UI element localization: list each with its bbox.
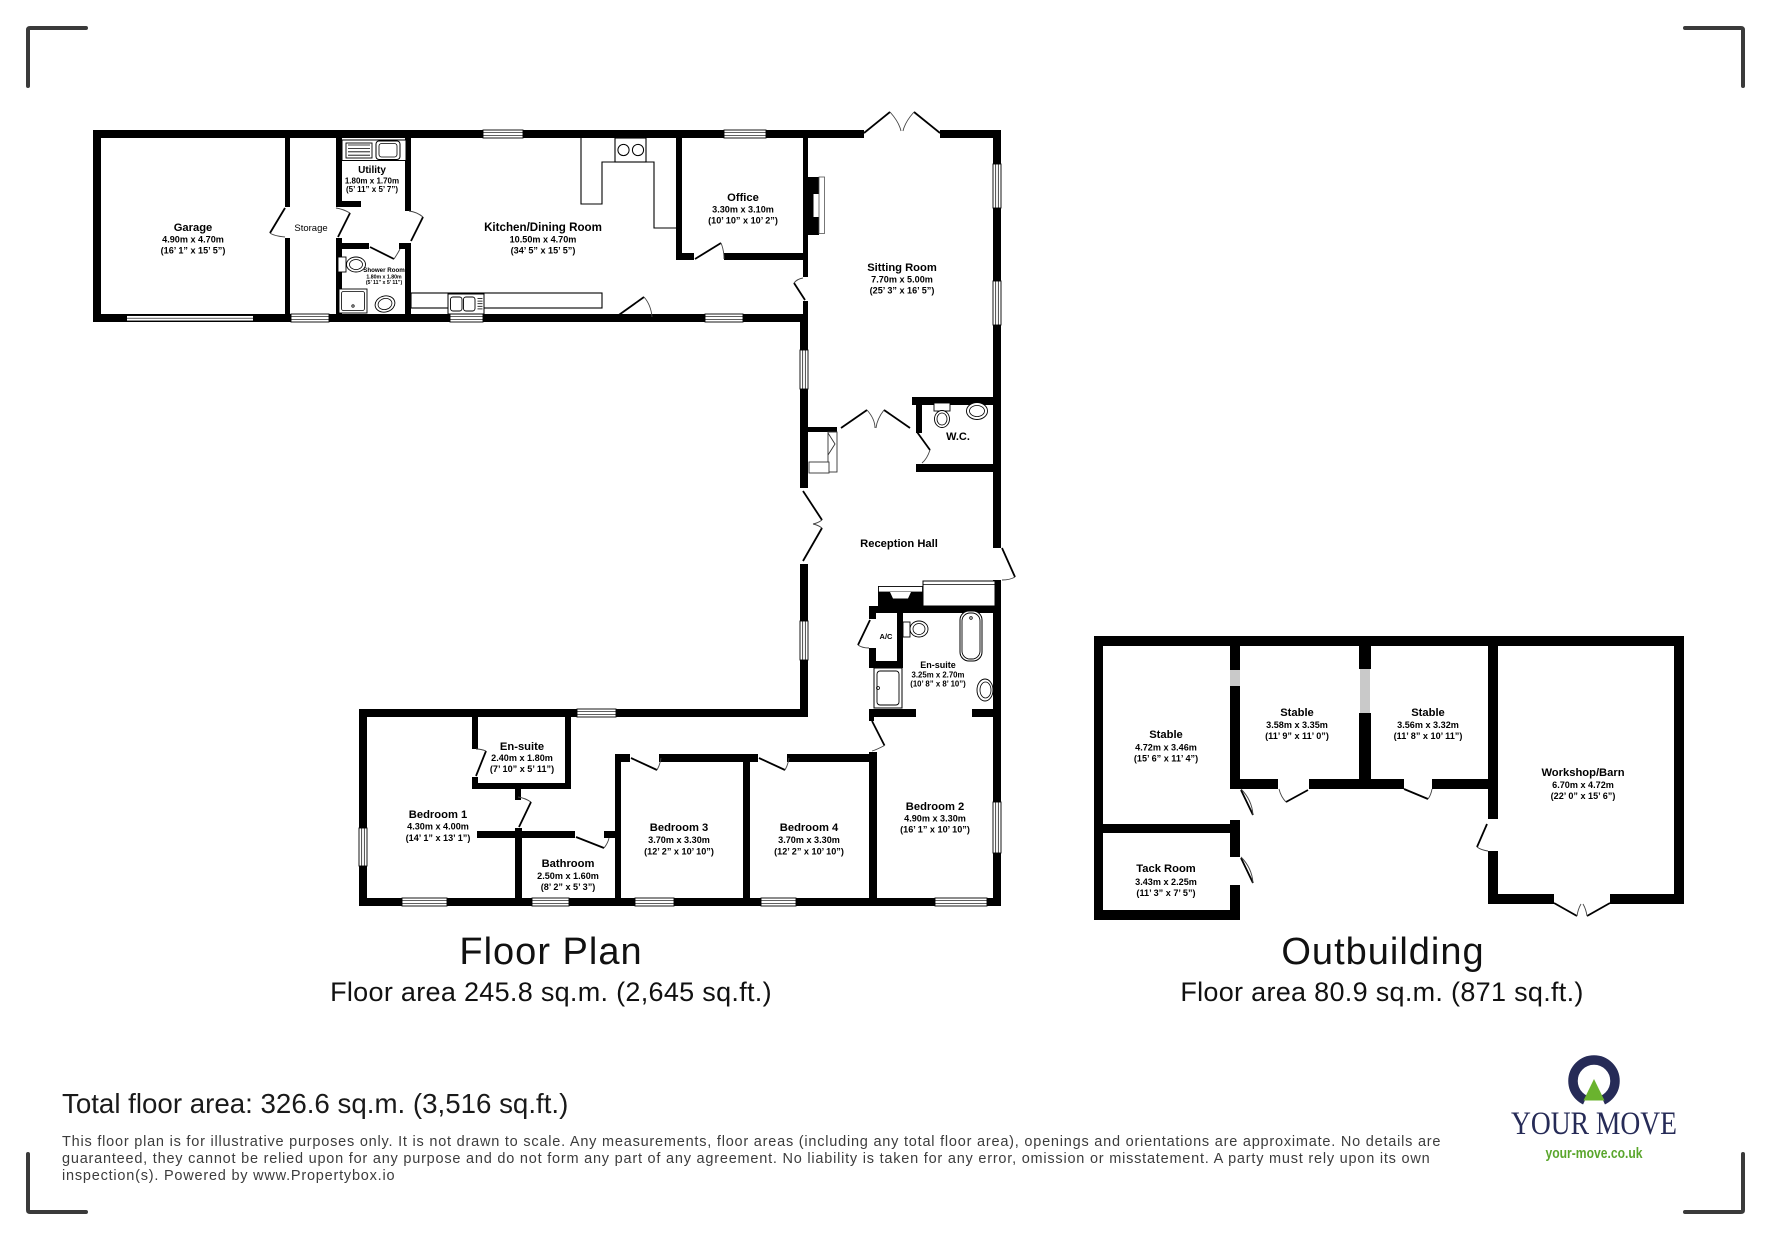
svg-text:7.70m x 5.00m: 7.70m x 5.00m xyxy=(871,275,933,285)
svg-text:3.25m x 2.70m: 3.25m x 2.70m xyxy=(912,671,965,680)
svg-text:(25’ 3” x 16’ 5”): (25’ 3” x 16’ 5”) xyxy=(870,286,935,296)
svg-text:Stable: Stable xyxy=(1280,707,1314,719)
svg-text:Office: Office xyxy=(727,192,759,204)
svg-text:A/C: A/C xyxy=(880,632,894,641)
svg-text:Floor area 245.8 sq.m. (2,645: Floor area 245.8 sq.m. (2,645 sq.ft.) xyxy=(330,977,772,1007)
svg-text:10.50m x 4.70m: 10.50m x 4.70m xyxy=(510,235,577,245)
svg-text:2.40m x 1.80m: 2.40m x 1.80m xyxy=(491,753,553,763)
svg-text:(10’ 10” x 10’ 2”): (10’ 10” x 10’ 2”) xyxy=(708,216,778,226)
svg-text:4.90m x 3.30m: 4.90m x 3.30m xyxy=(904,814,966,824)
svg-text:Outbuilding: Outbuilding xyxy=(1281,931,1484,973)
svg-text:(22’ 0” x 15’ 6”): (22’ 0” x 15’ 6”) xyxy=(1551,791,1616,801)
svg-text:Bedroom 2: Bedroom 2 xyxy=(906,801,964,813)
svg-text:Reception Hall: Reception Hall xyxy=(860,538,938,550)
svg-text:3.58m x 3.35m: 3.58m x 3.35m xyxy=(1266,720,1328,730)
svg-text:(12’ 2” x 10’ 10”): (12’ 2” x 10’ 10”) xyxy=(644,847,714,857)
svg-text:(10’ 8” x 8’ 10”): (10’ 8” x 8’ 10”) xyxy=(910,680,966,689)
svg-text:4.90m x 4.70m: 4.90m x 4.70m xyxy=(162,235,224,245)
svg-text:Workshop/Barn: Workshop/Barn xyxy=(1541,767,1624,779)
svg-text:your-move.co.uk: your-move.co.uk xyxy=(1546,1146,1644,1162)
svg-text:Shower Room: Shower Room xyxy=(363,267,405,274)
svg-text:(34’ 5” x 15’ 5”): (34’ 5” x 15’ 5”) xyxy=(511,246,576,256)
svg-text:4.30m x 4.00m: 4.30m x 4.00m xyxy=(407,822,469,832)
svg-text:(16’ 1” x 15’ 5”): (16’ 1” x 15’ 5”) xyxy=(161,246,226,256)
svg-text:2.50m x 1.60m: 2.50m x 1.60m xyxy=(537,871,599,881)
svg-text:Bedroom 1: Bedroom 1 xyxy=(409,809,467,821)
svg-text:3.70m x 3.30m: 3.70m x 3.30m xyxy=(778,835,840,845)
svg-text:(12’ 2” x 10’ 10”): (12’ 2” x 10’ 10”) xyxy=(774,847,844,857)
svg-text:inspection(s). Powered by www.: inspection(s). Powered by www.Propertybo… xyxy=(62,1168,395,1184)
svg-text:Floor area 80.9 sq.m. (871 sq.: Floor area 80.9 sq.m. (871 sq.ft.) xyxy=(1180,977,1583,1007)
svg-text:(11’ 3” x 7’ 5”): (11’ 3” x 7’ 5”) xyxy=(1136,888,1195,898)
svg-text:3.70m x 3.30m: 3.70m x 3.30m xyxy=(648,835,710,845)
svg-text:3.43m x 2.25m: 3.43m x 2.25m xyxy=(1135,877,1197,887)
svg-text:(11’ 8” x 10’ 11”): (11’ 8” x 10’ 11”) xyxy=(1394,731,1463,741)
svg-text:(16’ 1” x 10’ 10”): (16’ 1” x 10’ 10”) xyxy=(900,825,970,835)
svg-text:Stable: Stable xyxy=(1149,729,1183,741)
svg-text:Total floor area: 326.6 sq.m.: Total floor area: 326.6 sq.m. (3,516 sq.… xyxy=(62,1088,568,1119)
svg-text:Stable: Stable xyxy=(1411,707,1445,719)
svg-text:Utility: Utility xyxy=(358,165,386,176)
svg-text:(8’ 2” x 5’ 3”): (8’ 2” x 5’ 3”) xyxy=(541,882,596,892)
svg-text:Sitting Room: Sitting Room xyxy=(867,262,937,274)
svg-text:(15’ 6” x 11’ 4”): (15’ 6” x 11’ 4”) xyxy=(1134,754,1198,764)
svg-text:This floor plan is for illustr: This floor plan is for illustrative purp… xyxy=(62,1134,1441,1150)
svg-text:En-suite: En-suite xyxy=(500,741,544,753)
svg-text:(5’ 11” x 5’ 7”): (5’ 11” x 5’ 7”) xyxy=(346,185,398,194)
svg-text:YOUR MOVE: YOUR MOVE xyxy=(1511,1106,1677,1142)
svg-text:Garage: Garage xyxy=(174,222,213,234)
svg-text:Bedroom 3: Bedroom 3 xyxy=(650,822,708,834)
svg-text:Storage: Storage xyxy=(294,223,327,234)
svg-text:Floor Plan: Floor Plan xyxy=(459,931,642,973)
svg-text:(14’ 1” x 13’ 1”): (14’ 1” x 13’ 1”) xyxy=(406,833,471,843)
svg-text:(11’ 9” x 11’ 0”): (11’ 9” x 11’ 0”) xyxy=(1265,731,1329,741)
svg-text:Tack Room: Tack Room xyxy=(1136,863,1196,875)
svg-text:(7’ 10” x 5’ 11”): (7’ 10” x 5’ 11”) xyxy=(490,764,554,774)
svg-text:6.70m x 4.72m: 6.70m x 4.72m xyxy=(1552,780,1614,790)
svg-text:4.72m x 3.46m: 4.72m x 3.46m xyxy=(1135,743,1197,753)
svg-text:Bathroom: Bathroom xyxy=(542,858,595,870)
svg-text:Bedroom 4: Bedroom 4 xyxy=(780,822,839,834)
svg-text:Kitchen/Dining Room: Kitchen/Dining Room xyxy=(484,221,602,234)
svg-text:(5’ 11” x 5’ 11”): (5’ 11” x 5’ 11”) xyxy=(366,280,403,286)
svg-text:3.56m x 3.32m: 3.56m x 3.32m xyxy=(1397,720,1459,730)
svg-text:3.30m x 3.10m: 3.30m x 3.10m xyxy=(712,205,774,215)
svg-text:En-suite: En-suite xyxy=(920,660,956,670)
svg-text:guaranteed, they cannot be rel: guaranteed, they cannot be relied upon f… xyxy=(62,1151,1430,1167)
svg-text:W.C.: W.C. xyxy=(946,431,970,443)
